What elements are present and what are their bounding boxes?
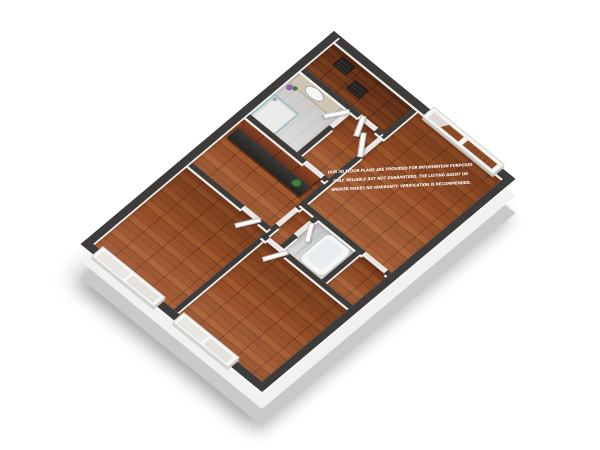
floor-plan-scene: OUR 3D FLOOR PLANS ARE PROVIDED FOR INFO… bbox=[0, 0, 600, 450]
floor-plan bbox=[81, 31, 516, 392]
